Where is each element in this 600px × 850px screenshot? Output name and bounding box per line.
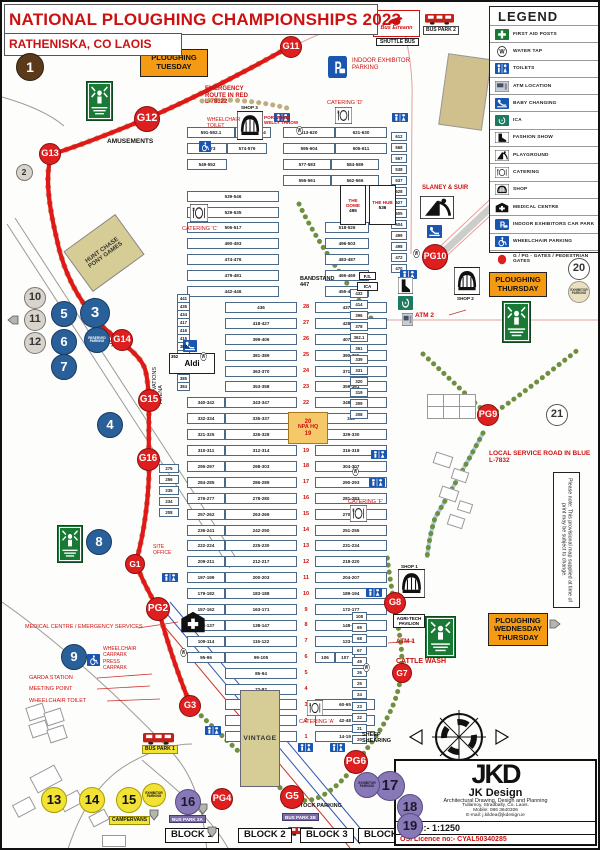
road-number: 19 (297, 445, 315, 456)
bus-icon (143, 732, 174, 744)
carpark-circle-5: 5 (51, 301, 77, 327)
title-block: JKD JK Design Architectural Drawing, Des… (394, 759, 597, 846)
plot-row: 197-199200-20311204-207 (187, 572, 387, 588)
npa-hq: 20NPA HQ19 (288, 412, 328, 444)
plot-block: 200-203 (225, 572, 297, 583)
the-hub: THE HUB536 (369, 185, 396, 225)
emergency-assembly-sign (57, 525, 83, 563)
spacer (187, 302, 225, 313)
strip-number: 472 (391, 253, 407, 262)
plot-row: 490-493496-503 (187, 238, 387, 254)
agritech-pavilion: AGRI-TECH PAVILION (393, 614, 425, 628)
road-number: 25 (297, 350, 315, 361)
carpark-circle-16: 16 (175, 789, 201, 815)
plot-block: 556-561 (283, 175, 331, 186)
wheelchair-icon (87, 653, 100, 665)
road-number: 14 (297, 525, 315, 536)
label-catering-d-: CATERING 'D' (327, 100, 363, 106)
road-number: 27 (297, 318, 315, 329)
road-number: 18 (297, 461, 315, 472)
plot-block: 231-234 (315, 540, 387, 551)
label-meeting-point: MEETING POINT (29, 686, 72, 692)
legend-item: TOILETS (490, 60, 598, 77)
scale-row: Scale:- 1:1250 (396, 821, 595, 834)
legend-item: BABY CHANGING (490, 94, 598, 111)
gate-G8: G8 (384, 592, 406, 614)
plot-block: 574-576 (227, 143, 267, 154)
plot-block: 251-255 (315, 525, 387, 536)
gate-G15: G15 (138, 389, 161, 412)
catering-icon (190, 204, 208, 222)
carpark-circle-2: 2 (16, 164, 33, 181)
building (102, 835, 126, 847)
gate-G1: G1 (125, 554, 145, 574)
toilets-icon (494, 63, 509, 75)
fashion-icon (398, 277, 413, 294)
direction-arrow-down (206, 825, 218, 837)
strip-number: 568 (391, 143, 407, 152)
plot-block: 295-297 (187, 461, 225, 472)
carpark-circle-6: 6 (51, 329, 77, 355)
strip-number: 69 (352, 623, 367, 632)
carpark-circle-4: 4 (97, 412, 123, 438)
legend-item: PLAYGROUND (490, 146, 598, 163)
legend-item: FIRST AID POSTS (490, 25, 598, 42)
aldi-block: 352Aldi (169, 353, 215, 374)
event-box-ploughing-thursday: PLOUGHING THURSDAY (489, 272, 547, 297)
plot-block: 353-358 (225, 381, 297, 392)
label-medical-centre-emergency: MEDICAL CENTRE / EMERGENCY SERVICES (25, 624, 143, 630)
road-number: 22 (297, 397, 315, 408)
atm-icon (402, 313, 413, 326)
plot-block: 418-427 (225, 318, 297, 329)
toilets-icon (400, 266, 417, 275)
plot-block: 115-122 (225, 636, 297, 647)
plot-block: 496-503 (325, 238, 369, 249)
plot-block: 148-155 (315, 620, 387, 631)
road-number: 23 (297, 381, 315, 392)
strip-number: 351 (350, 344, 368, 353)
plot-block: 335-337 (225, 413, 297, 424)
plot-row: 569-573574-576595-604605-611 (187, 143, 387, 159)
carpark-circle-7: 7 (51, 354, 77, 380)
carpark-circle-3: 3 (80, 298, 110, 328)
plot-block: 490-493 (187, 238, 279, 249)
road-number: 24 (297, 366, 315, 377)
strip-number: 538 (391, 165, 407, 174)
plot-block: 106 (315, 652, 335, 663)
road-number: 16 (297, 493, 315, 504)
plot-block: 109-114 (187, 636, 225, 647)
playground-icon (494, 149, 509, 161)
building (12, 796, 36, 818)
spacer (271, 127, 283, 138)
carpark-circle-20: 20 (568, 258, 590, 280)
label-block-3: BLOCK 3 (300, 828, 354, 843)
gate-G13: G13 (39, 143, 61, 165)
legend-item: MEDICAL CENTRE (490, 198, 598, 215)
carpark-icon: P (494, 218, 509, 230)
medical-icon (180, 610, 206, 634)
plot-block: 163-171 (225, 604, 297, 615)
building (46, 725, 67, 744)
toilets-icon (162, 569, 178, 578)
plot-block: 479-481 (187, 270, 279, 281)
plot-block: 179-182 (187, 588, 225, 599)
plot-block: 381-389 (225, 350, 297, 361)
road-number: 28 (297, 302, 315, 313)
building (433, 452, 454, 469)
plot-block: 595-604 (283, 143, 335, 154)
direction-arrow-right (548, 618, 560, 630)
strip-number: 339 (350, 355, 368, 364)
plot-block: 209-211 (187, 556, 225, 567)
catering-icon (307, 700, 323, 716)
label-emergency-route-in-red-l: EMERGENCY ROUTE IN RED L-78322 (205, 86, 248, 106)
p-icon: P (328, 56, 347, 78)
legend-item: WWATER TAP (490, 42, 598, 59)
spacer (187, 668, 225, 679)
plot-block: 183-188 (225, 588, 297, 599)
gate-PG4: PG4 (211, 788, 233, 810)
gate-G14: G14 (111, 329, 133, 351)
strip-number: 362.1 (350, 333, 368, 342)
plot-block: 95-96 (187, 652, 225, 663)
label-bandstand-447: BANDSTAND 447 (300, 276, 334, 288)
plot-block: 321-325 (187, 429, 225, 440)
label-portwest-welly-throw: PORTWEST WELLY THROW (264, 115, 298, 125)
legend-label: SHOP (513, 187, 527, 192)
bus-icon (425, 12, 454, 23)
carpark-circle-11: 11 (24, 309, 46, 331)
road-number: 5 (297, 668, 315, 679)
plot-block: 436 (225, 302, 297, 313)
road-number: 10 (297, 588, 315, 599)
plot-block: 442-446 (187, 286, 279, 297)
plot-block: 263-269 (225, 509, 297, 520)
label-atm-2: ATM 2 (415, 312, 434, 319)
strip-number: 235 (159, 486, 179, 495)
road-number: 4 (297, 684, 315, 695)
label-site-office: SITE OFFICE (153, 545, 171, 556)
legend-label: MEDICAL CENTRE (513, 205, 559, 210)
plot-row: 236-241242-25014251-255 (187, 525, 387, 541)
emergency-assembly-sign (425, 616, 456, 658)
spacer (279, 286, 297, 297)
plot-block: 236-241 (187, 525, 225, 536)
gate-G12: G12 (134, 106, 160, 132)
legend-items: FIRST AID POSTSWWATER TAPTOILETSATM LOCA… (490, 25, 598, 267)
toilets-icon (371, 446, 387, 455)
plot-block: 278-280 (225, 493, 297, 504)
plot-row: 591-592.1593594613-620621-630 (187, 127, 387, 143)
strip-number: 414 (350, 300, 368, 309)
emergency-assembly-sign (86, 81, 113, 121)
plot-block: 218-220 (315, 556, 387, 567)
plot-block: 621-630 (335, 127, 387, 138)
road-number: 6 (297, 652, 315, 663)
building (439, 486, 460, 503)
gate-PG9: PG9 (477, 404, 499, 426)
spacer (279, 270, 297, 281)
plot-row: 179-182183-18810189-194 (187, 588, 387, 604)
please-note: Please note: This provisional map suppli… (553, 472, 580, 608)
strip-number: 378 (350, 322, 368, 331)
plot-row: 284-285286-28917290-293 (187, 477, 387, 493)
toilets-icon (392, 109, 408, 118)
wheelchair-icon (199, 139, 211, 150)
catering-icon (335, 107, 352, 124)
toilets-icon (330, 739, 345, 748)
plot-block: 242-250 (225, 525, 297, 536)
plot-row: 209-211212-21712218-220 (187, 556, 387, 572)
strip-number: 234 (159, 497, 179, 506)
plot-block: 204-207 (315, 572, 387, 583)
plot-block: 197-199 (187, 572, 225, 583)
tap-icon: W (412, 245, 421, 254)
carpark-circle-exhibitor-parking: EXHIBITOR PARKING (142, 783, 166, 807)
label-campervans: CAMPERVANS (109, 816, 150, 825)
strip-number: 23 (352, 702, 367, 711)
label-bus-park-2: BUS PARK 2 (423, 26, 459, 35)
strip-number: 25 (352, 679, 367, 688)
plot-block: 343-347 (225, 397, 297, 408)
legend-header: LEGEND (490, 7, 598, 25)
label-slaney-suir: SLANEY & SUIR (422, 185, 468, 192)
strip-number: 22 (352, 713, 367, 722)
plot-block: 549-552 (187, 159, 227, 170)
strip-number: 319 (350, 388, 368, 397)
label-indoor-exhibitor-parking: INDOOR EXHIBITOR PARKING (352, 58, 410, 71)
plot-block: 298-303 (225, 461, 297, 472)
plot-block: 312-314 (225, 445, 297, 456)
svg-text:P: P (499, 220, 505, 230)
plot-block: 584-589 (331, 159, 379, 170)
plot-block: 340-342 (187, 397, 225, 408)
catering-icon (350, 505, 367, 522)
the-dome: THE DOME495 (340, 185, 366, 225)
label-wheelchair-toilet: WHEELCHAIR TOILET (207, 118, 240, 129)
gate-icon (494, 253, 509, 265)
road-number: 9 (297, 604, 315, 615)
legend-label: FIRST AID POSTS (513, 32, 557, 37)
legend-item: ATM LOCATION (490, 77, 598, 94)
legend-item: WHEELCHAIR PARKING (490, 233, 598, 250)
plot-block: 276-277 (187, 493, 225, 504)
strip-number: 498 (391, 242, 407, 251)
spacer (279, 254, 297, 265)
plot-row: 474-476483-487 (187, 254, 387, 270)
label-block-2: BLOCK 2 (238, 828, 292, 843)
road-number: 12 (297, 556, 315, 567)
plot-block: 332-334 (187, 413, 225, 424)
building (447, 514, 466, 529)
road-number: 26 (297, 334, 315, 345)
hunt-chase-area: HUNT CHASE PONY GAMES (63, 214, 144, 292)
strip-number: 208 (159, 508, 179, 517)
plot-block: 222-224 (187, 540, 225, 551)
gate-PG10: PG10 (422, 244, 448, 270)
licence-row: OSI Licence no:- CYAL50340285 (396, 834, 595, 844)
label-shop-1: SHOP 1 (401, 564, 418, 569)
fs-box: F.S. (359, 272, 376, 280)
road-number: 8 (297, 620, 315, 631)
ica-icon (398, 296, 413, 310)
strip-number: 67 (352, 646, 367, 655)
label-wheelchair-toilet: WHEELCHAIR TOILET (29, 698, 86, 704)
road-number: 11 (297, 572, 315, 583)
spacer (279, 238, 297, 249)
plot-block: 363-370 (225, 366, 297, 377)
spacer (187, 318, 225, 329)
toilets-icon (205, 722, 221, 731)
strip-number: 256 (159, 475, 179, 484)
building (443, 406, 460, 419)
strip-number: 499 (391, 231, 407, 240)
label-shop-3: SHOP 3 (241, 105, 258, 110)
baby-changing-icon (494, 97, 509, 109)
plot-block: 474-476 (187, 254, 279, 265)
building (457, 500, 473, 514)
label-bus-park-3a: BUS PARK 3A (169, 815, 206, 823)
strip-number: 320 (350, 377, 368, 386)
tap-icon: W (351, 463, 360, 472)
plot-block: 310-311 (187, 445, 225, 456)
label-sheep-shearing: SHEEP SHEARING (362, 732, 391, 744)
plot-block: 212-217 (225, 556, 297, 567)
label-wheelchair-carpark: WHEELCHAIR CARPARK (103, 647, 136, 658)
plot-block: 123-130 (315, 636, 387, 647)
label-bus-park-1: BUS PARK 1 (142, 745, 178, 754)
vintage-area: VINTAGE (240, 690, 280, 787)
strip-number: 396 (350, 311, 368, 320)
toilets-icon (366, 584, 382, 593)
ica-box: ICA (357, 282, 378, 291)
road-number: 7 (297, 636, 315, 647)
gate-G3: G3 (179, 695, 201, 717)
fashion-show-icon (494, 132, 509, 144)
building (438, 53, 492, 130)
carpark-circle-exhibitor-parking: EXHIBITOR PARKING (568, 281, 590, 303)
shop-icon (237, 111, 263, 140)
spacer (227, 159, 283, 170)
strip-number: 275 (159, 464, 179, 473)
plot-block: 99-105 (225, 652, 297, 663)
label-local-service-road-in-bl: LOCAL SERVICE ROAD IN BLUE L-7832 (489, 450, 590, 465)
carpark-circle-13: 13 (41, 787, 67, 813)
label-garda-station: GARDA STATION (29, 675, 73, 681)
legend-label: PLAYGROUND (513, 153, 549, 158)
strip-number: 612 (391, 132, 407, 141)
legend-label: TOILETS (513, 66, 535, 71)
jkd-line4: E-mail: j.kildea@jkdesign.ie (396, 814, 595, 819)
strip-number: 537 (391, 176, 407, 185)
plot-row: 222-224225-23013231-234 (187, 540, 387, 556)
direction-arrow-left (8, 314, 20, 326)
carpark-circle-10: 10 (24, 287, 46, 309)
shuttle-bus-label: SHUTTLE BUS (376, 38, 419, 46)
strip-number: 567 (391, 154, 407, 163)
label-catering-c-: CATERING 'C' (182, 226, 218, 232)
legend-item: SHOP (490, 181, 598, 198)
plot-block: 577-583 (283, 159, 331, 170)
shop-icon (454, 267, 480, 295)
toilets-icon (369, 474, 385, 483)
gate-G5: G5 (280, 785, 304, 809)
spacer (187, 175, 283, 186)
firstaid-icon (494, 28, 509, 40)
event-box-ploughing-wednesday-thursday: PLOUGHING WEDNESDAY THURSDAY (488, 613, 548, 646)
emergency-assembly-sign (502, 301, 531, 343)
legend-item: PINDOOR EXHIBITORS CAR PARK (490, 215, 598, 232)
carpark-circle-exhibitor-parking: EXHIBITOR PARKING (354, 772, 380, 798)
strip-number: 331 (350, 366, 368, 375)
label-press-carpark: PRESS CARPARK (103, 660, 127, 671)
legend-label: ICA (513, 118, 522, 123)
label-shop-2: SHOP 2 (457, 296, 474, 301)
jkd-logo: JKD (396, 761, 595, 788)
playground-icon (420, 196, 454, 219)
medical-icon (494, 201, 509, 213)
carpark-circle-14: 14 (79, 787, 105, 813)
carpark-circle-1: 1 (16, 53, 44, 81)
spacer (267, 143, 283, 154)
carpark-circle-19: 19 (397, 813, 423, 839)
legend-item: CATERING (490, 163, 598, 180)
spacer (187, 381, 225, 392)
svg-text:P: P (335, 59, 342, 78)
road-number: 17 (297, 477, 315, 488)
carpark-circle-21: 21 (546, 404, 568, 426)
plot-row: 310-311312-31419316-318 (187, 445, 387, 461)
plot-block: 172-177 (315, 604, 387, 615)
baby-icon (427, 225, 442, 238)
legend-panel: LEGEND FIRST AID POSTSWWATER TAPTOILETSA… (489, 6, 599, 253)
plot-block: 138-147 (225, 620, 297, 631)
plot-block: 326-328 (225, 429, 297, 440)
strip-number: 24 (352, 690, 367, 699)
strip-number: 384 (177, 382, 190, 391)
legend-label: FASHION SHOW (513, 135, 553, 140)
map-page: 591-592.1593594613-620621-630569-573574-… (0, 0, 600, 850)
building (427, 406, 444, 419)
spacer (279, 222, 297, 233)
plot-block: 85-94 (225, 668, 297, 679)
tap-icon: W (179, 644, 188, 653)
plot-block: 286-289 (225, 477, 297, 488)
label-amusements: AMUSEMENTS (107, 138, 153, 145)
legend-label: WHEELCHAIR PARKING (513, 239, 572, 244)
strip-number: 309 (350, 399, 368, 408)
carpark-circle-8: 8 (86, 529, 112, 555)
plot-block: 539-546 (187, 191, 279, 202)
carpark-circle-reserved-parking: RESERVED PARKING (84, 327, 110, 353)
label-atm-1: ATM 1 (396, 638, 415, 645)
legend-label: CATERING (513, 170, 539, 175)
gate-PG2: PG2 (146, 597, 170, 621)
carpark-circle-12: 12 (24, 332, 46, 354)
water-tap-icon: W (494, 45, 509, 57)
plot-row: 321-325326-32820329-330 (187, 429, 387, 445)
strip-number: 308 (350, 410, 368, 419)
toilets-icon (298, 739, 313, 748)
road-number: 13 (297, 540, 315, 551)
tap-icon: W (199, 348, 208, 357)
atm-icon (494, 80, 509, 92)
page-subtitle: RATHENISKA, CO LAOIS (5, 38, 151, 51)
label-384: 384 (182, 344, 190, 349)
svg-text:W: W (499, 49, 505, 55)
